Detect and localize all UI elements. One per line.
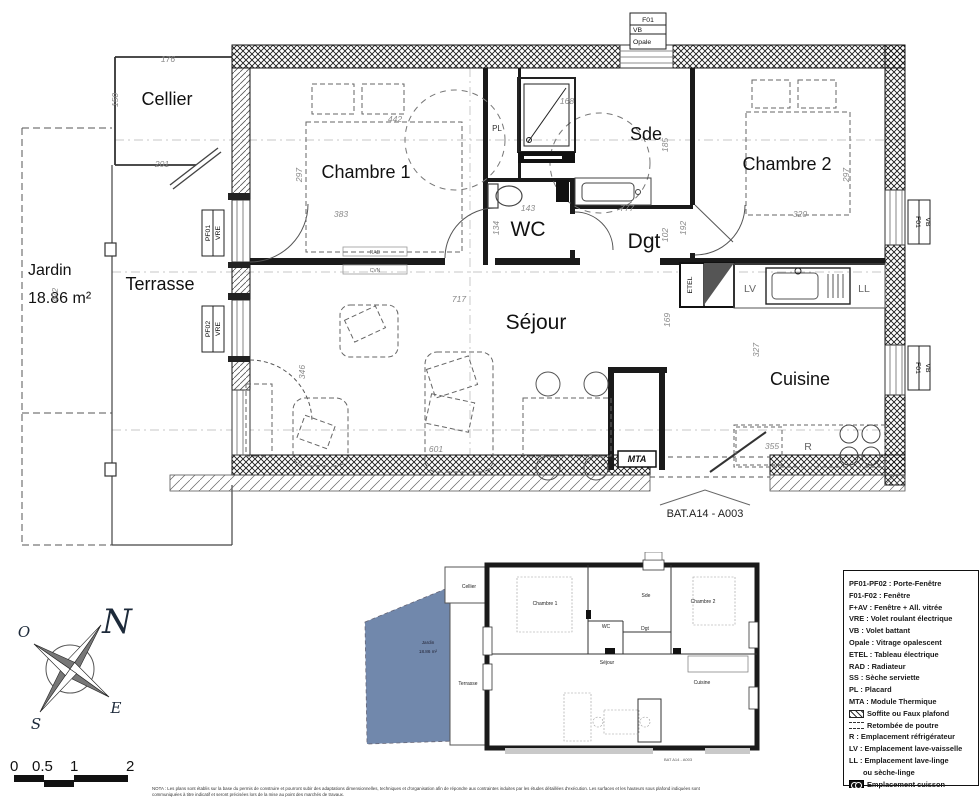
mini-label-cellier: Cellier — [462, 584, 477, 590]
tag-f01-line3: Opale — [633, 39, 651, 46]
soffit-strips — [170, 475, 905, 491]
dim-cuisine-h: 169 — [662, 313, 672, 327]
tag-f01-right1-label: F01 — [914, 216, 921, 228]
dim-sde-h: 185 — [660, 138, 670, 152]
label-cuisine: Cuisine — [770, 369, 830, 389]
scale-segment — [44, 780, 74, 787]
door-swings — [250, 204, 766, 472]
legend-item: PL : Placard — [849, 684, 978, 696]
label-cvn: CVN — [370, 268, 381, 274]
label-cellier: Cellier — [141, 89, 192, 109]
label-pl: PL — [492, 124, 502, 133]
legend-item: ETEL : Tableau électrique — [849, 649, 978, 661]
beam-dashed-icon — [849, 722, 864, 729]
soffite-hatch-icon — [849, 710, 864, 718]
label-terrasse: Terrasse — [125, 274, 194, 294]
windows — [228, 45, 905, 455]
interior-walls — [250, 68, 885, 470]
tag-f01-line1: F01 — [642, 17, 654, 24]
legend-text: ou sèche-linge — [849, 767, 915, 779]
dim-ch1-w: 442 — [388, 114, 402, 124]
dim-cellier-h: 150 — [110, 93, 120, 107]
dim-cuisine-h2: 327 — [751, 343, 761, 357]
label-ll: LL — [858, 283, 870, 295]
dim-terrasse-h: 472 — [50, 288, 60, 302]
shower — [518, 78, 575, 152]
mini-porch — [505, 748, 750, 754]
mini-site-plan: Cellier Terrasse Jardin 18.86 m² Chambre… — [355, 552, 785, 787]
dimensions: 176 150 201 472 297 442 383 143 134 777 … — [50, 54, 851, 454]
label-etel: ETEL — [687, 276, 694, 293]
dim-sejour-h: 346 — [297, 365, 307, 379]
tag-pf01-label: PF01 — [205, 225, 212, 241]
scale-label-05: 0.5 — [32, 758, 53, 775]
legend-text: F+AV : Fenêtre + All. vitrée — [849, 602, 942, 614]
nota-disclaimer: NOTA : Les plans sont établis sur la bas… — [152, 786, 976, 799]
label-sde: Sde — [630, 124, 662, 144]
dim-ch2-h: 297 — [841, 168, 851, 183]
mini-label-bat: BAT A14 - A003 — [664, 757, 693, 762]
mini-label-sde: Sde — [642, 593, 651, 599]
scale-segment — [14, 775, 44, 782]
washbasin — [575, 178, 651, 205]
nota-line2: communiquées à titre indicatif et seront… — [152, 792, 976, 798]
tag-f01-right2-label: F01 — [914, 362, 921, 374]
terrasse-posts — [105, 243, 116, 476]
mini-label-dgt: Dgt — [641, 626, 649, 632]
tag-f01-opale: F01 VB Opale — [630, 13, 666, 49]
legend-text: VRE : Volet roulant électrique — [849, 613, 952, 625]
mini-label-wc: WC — [602, 624, 611, 630]
mini-apartment-outline — [487, 565, 757, 748]
scale-segment — [74, 775, 128, 782]
dim-dgt-h2: 192 — [678, 221, 688, 235]
dim-sde-w: 168 — [560, 96, 574, 106]
tag-f01-vb-right2: F01 VB — [908, 346, 931, 390]
mini-label-jardin-area: 18.86 m² — [419, 649, 438, 654]
compass-south-label: S — [31, 715, 41, 733]
compass-north-label: N — [101, 602, 133, 642]
label-lv: LV — [744, 283, 756, 295]
legend-text: Soffite ou Faux plafond — [867, 708, 949, 720]
legend-text: ETEL : Tableau électrique — [849, 649, 939, 661]
tag-f01-vb-right1: F01 VB — [908, 200, 931, 244]
ss-unit — [556, 180, 569, 202]
legend-text: RAD : Radiateur — [849, 661, 906, 673]
legend-item: MTA : Module Thermique — [849, 696, 978, 708]
floorplan-sheet: F01 VB Opale PF01 VRE PF02 VRE F01 VB F0… — [0, 0, 980, 800]
legend-item: Soffite ou Faux plafond — [849, 708, 978, 720]
legend-item: LV : Emplacement lave-vaisselle — [849, 743, 978, 755]
legend-item: VRE : Volet roulant électrique — [849, 613, 978, 625]
mini-label-chambre1: Chambre 1 — [533, 601, 558, 607]
legend-item: ou sèche-linge — [849, 767, 978, 779]
tag-pf02-label: PF02 — [205, 321, 212, 337]
legend-text: PF01-PF02 : Porte-Fenêtre — [849, 578, 941, 590]
legend-text: R : Emplacement réfrigérateur — [849, 731, 955, 743]
tag-f01-line2: VB — [633, 27, 643, 34]
scale-label-1: 1 — [70, 758, 78, 775]
mini-label-cuisine: Cuisine — [694, 680, 711, 686]
tag-pf02-vre: PF02 VRE — [202, 306, 224, 352]
dim-ch2-w: 320 — [793, 209, 807, 219]
dim-dgt-w: 777 — [620, 203, 634, 213]
legend-item: F01-F02 : Fenêtre — [849, 590, 978, 602]
label-chambre2: Chambre 2 — [742, 154, 831, 174]
tag-pf01-vre-label: VRE — [215, 226, 222, 240]
tag-pf01-vre: PF01 VRE — [202, 210, 224, 256]
tag-vb-right2-label: VB — [924, 363, 931, 373]
tag-pf02-vre-label: VRE — [215, 322, 222, 336]
legend-text: LV : Emplacement lave-vaisselle — [849, 743, 962, 755]
mini-label-chambre2: Chambre 2 — [691, 599, 716, 605]
dim-cuisine-b: 355 — [765, 441, 779, 451]
legend-item: F+AV : Fenêtre + All. vitrée — [849, 602, 978, 614]
cellier-door — [170, 148, 221, 189]
compass-rose: N O S E — [10, 585, 150, 745]
dim-sejour-b: 601 — [429, 444, 443, 454]
compass-star — [34, 625, 109, 712]
dim-cellier-b: 201 — [154, 159, 169, 169]
dim-ch1-b: 383 — [334, 209, 348, 219]
furniture — [246, 80, 850, 472]
towel-dryer-slot — [524, 156, 562, 159]
legend-text: PL : Placard — [849, 684, 892, 696]
label-r: R — [804, 441, 812, 453]
jardin-area-shape — [365, 585, 455, 744]
legend-item: Retombée de poutre — [849, 720, 978, 732]
dim-dgt-h: 102 — [660, 228, 670, 242]
label-dgt: Dgt — [628, 230, 661, 253]
legend-text: MTA : Module Thermique — [849, 696, 936, 708]
dim-wc-w: 143 — [521, 203, 535, 213]
legend-item: LL : Emplacement lave-linge — [849, 755, 978, 767]
label-sejour: Séjour — [506, 311, 567, 334]
legend-item: SS : Sèche serviette — [849, 672, 978, 684]
legend-text: SS : Sèche serviette — [849, 672, 920, 684]
label-bat: BAT.A14 - A003 — [667, 508, 744, 520]
legend-item: PF01-PF02 : Porte-Fenêtre — [849, 578, 978, 590]
legend-box: PF01-PF02 : Porte-Fenêtre F01-F02 : Fenê… — [843, 570, 979, 786]
bat-leader — [660, 490, 750, 505]
dim-sejour-w: 717 — [452, 294, 466, 304]
tag-vb-right1-label: VB — [924, 217, 931, 227]
scale-label-2: 2 — [126, 758, 134, 775]
legend-item: Opale : Vitrage opalescent — [849, 637, 978, 649]
legend-text: VB : Volet battant — [849, 625, 910, 637]
legend-text: Opale : Vitrage opalescent — [849, 637, 942, 649]
scale-label-0: 0 — [10, 758, 18, 775]
compass-west-label: O — [18, 623, 30, 641]
label-chambre1: Chambre 1 — [321, 162, 410, 182]
legend-item: RAD : Radiateur — [849, 661, 978, 673]
mini-label-jardin: Jardin — [422, 640, 435, 645]
mini-label-terrasse: Terrasse — [458, 681, 477, 687]
label-jardin: Jardin — [28, 262, 72, 279]
legend-text: LL : Emplacement lave-linge — [849, 755, 949, 767]
scale-bar: 0 0.5 1 2 — [10, 758, 150, 790]
legend-text: Retombée de poutre — [867, 720, 938, 732]
dim-cellier-w: 176 — [161, 54, 175, 64]
toilet — [488, 184, 522, 208]
label-rad: RAD — [370, 250, 381, 256]
label-mta: MTA — [628, 454, 647, 464]
label-wc: WC — [511, 218, 546, 241]
legend-item: VB : Volet battant — [849, 625, 978, 637]
mini-label-sejour: Séjour — [600, 660, 615, 666]
main-floorplan: F01 VB Opale PF01 VRE PF02 VRE F01 VB F0… — [0, 0, 980, 560]
dim-wc-h: 134 — [491, 221, 501, 235]
dim-ch1-h: 297 — [294, 168, 304, 183]
legend-text: F01-F02 : Fenêtre — [849, 590, 910, 602]
legend-item: R : Emplacement réfrigérateur — [849, 731, 978, 743]
compass-east-label: E — [110, 699, 122, 717]
